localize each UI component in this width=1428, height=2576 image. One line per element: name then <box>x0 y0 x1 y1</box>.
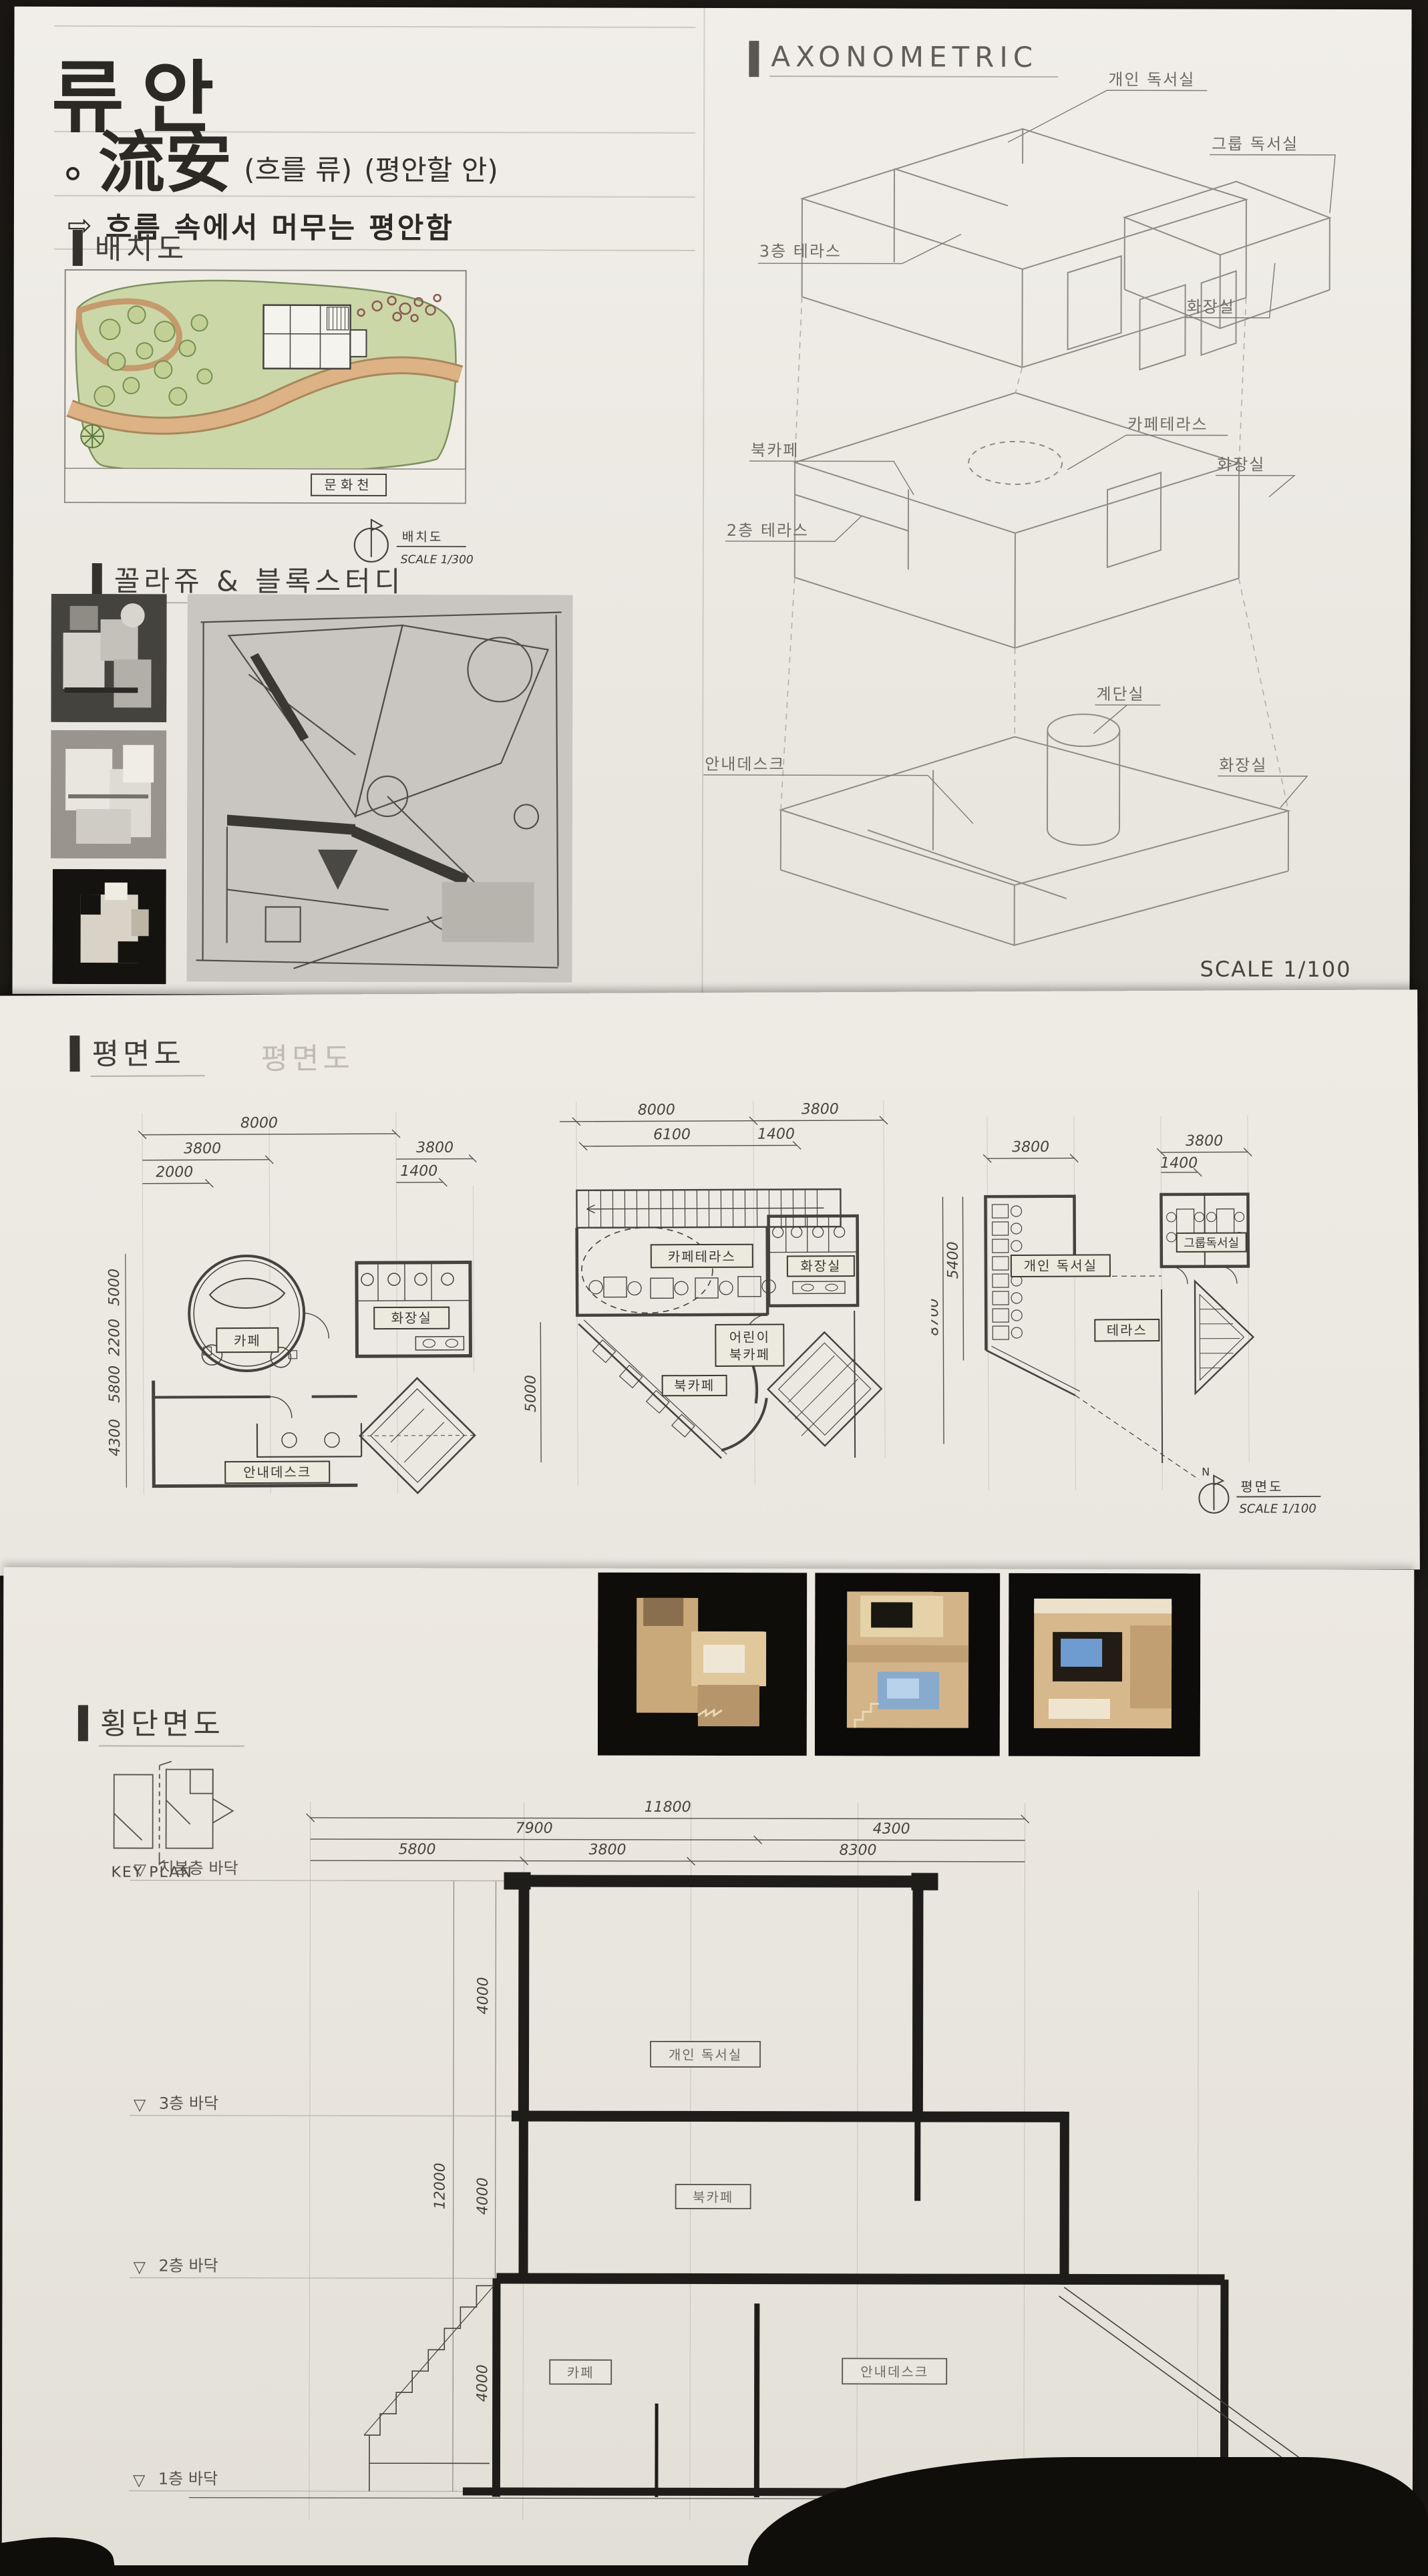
board-middle: 평면도 평면도 8000 3800 3800 2000 1400 5000 22… <box>0 989 1420 1575</box>
level-marker-icon: ▽ <box>133 2470 146 2489</box>
floorplan-header-label: 평면도 <box>90 1029 205 1077</box>
p2-dim-8000: 8000 <box>638 1102 675 1118</box>
p2-room-bookcafe: 북카페 <box>674 1378 715 1394</box>
title-bullet: ∘ <box>59 152 86 194</box>
level-marker-icon: ▽ <box>133 2257 146 2276</box>
block-study-photo-3 <box>52 869 166 984</box>
level-marker-icon: ▽ <box>134 2095 146 2114</box>
p3-room-group-reading: 그룹독서실 <box>1184 1237 1239 1251</box>
floor-plan-1: 8000 3800 3800 2000 1400 5000 2200 5800 … <box>102 1092 478 1504</box>
block-study-photo-2 <box>51 730 166 858</box>
projection-lines <box>781 297 1290 811</box>
axon-label-cafe-terrace: 카페테라스 <box>1127 415 1208 434</box>
north-letter: N <box>1202 1466 1210 1478</box>
header-bar-icon <box>73 230 83 266</box>
p2-room-toilet: 화장실 <box>800 1258 841 1274</box>
p3-room-personal-reading: 개인 독서실 <box>1024 1257 1097 1273</box>
axon-scale-note: SCALE 1/100 <box>1200 957 1351 982</box>
p3-dim-3800b: 3800 <box>1186 1133 1223 1150</box>
model-photo-2 <box>815 1573 1000 1756</box>
sec-dim-3800: 3800 <box>589 1842 627 1859</box>
axon-label-toilet-2f: 화장실 <box>1217 456 1265 474</box>
board-top: 류안 ∘ 流安 (흐를 류) (평안할 안) ⇨ 흐름 속에서 머무는 평안함 … <box>12 7 1411 997</box>
model-photo-3 <box>1009 1573 1200 1757</box>
floorplan-section-header: 평면도 <box>69 1029 205 1077</box>
north-arrow-icon <box>1199 1476 1228 1513</box>
hanja-note-1: (흐를 류) <box>244 148 352 195</box>
north-arrow-icon <box>355 520 388 562</box>
axon-label-group-reading: 그룹 독서실 <box>1212 135 1298 154</box>
p2-dim-1400: 1400 <box>757 1126 795 1142</box>
p1-dim-8000: 8000 <box>240 1115 278 1132</box>
p3-room-terrace: 테라스 <box>1107 1322 1147 1338</box>
p1-dim-left-2: 5800 <box>107 1365 124 1403</box>
header-bar-icon <box>69 1035 79 1072</box>
sec-room-cafe: 카페 <box>567 2365 594 2381</box>
p3-dim-left-1: 8700 <box>930 1298 942 1335</box>
axon-label-terrace-2f: 2층 테라스 <box>727 521 809 540</box>
level-label-2f: 2층 바닥 <box>158 2257 218 2275</box>
p1-dim-left-0: 5000 <box>106 1269 123 1306</box>
p1-dim-2000: 2000 <box>156 1164 193 1180</box>
stream-label: 문화천 <box>324 477 373 493</box>
p2-room-cafe-terrace: 카페테라스 <box>668 1249 736 1265</box>
section-header-label: 횡단면도 <box>99 1700 244 1746</box>
spoke-tree-icon <box>81 425 104 448</box>
axon-label-stair: 계단실 <box>1096 685 1144 703</box>
p2-room-kids-line2: 북카페 <box>729 1347 770 1363</box>
p1-dim-left-3: 4300 <box>107 1419 124 1456</box>
sec-dim-4000a: 4000 <box>475 1977 492 2014</box>
table-edge-shadow <box>0 2565 1428 2576</box>
site-plan-drawing: 문화천 배치도 SCALE 1/300 <box>63 268 478 576</box>
level-label-3f: 3층 바닥 <box>159 2094 218 2113</box>
cross-section-drawing: 11800 7900 4300 5800 3800 8300 4000 4000… <box>89 1794 1339 2541</box>
siteplan-header-label: 배치도 <box>94 224 208 271</box>
sec-room-personal-reading: 개인 독서실 <box>669 2047 742 2063</box>
plan-caption-name: 평면도 <box>1240 1478 1283 1494</box>
guide-line <box>54 25 695 28</box>
p3-dim-3800a: 3800 <box>1012 1139 1049 1156</box>
sec-dim-5800: 5800 <box>399 1841 436 1858</box>
photo-of-presentation-boards: 류안 ∘ 流安 (흐를 류) (평안할 안) ⇨ 흐름 속에서 머무는 평안함 … <box>0 0 1428 2576</box>
axon-label-personal-reading: 개인 독서실 <box>1108 70 1195 89</box>
level-label-roof: 지붕층 바닥 <box>160 1859 238 1878</box>
p1-dim-3800b: 3800 <box>416 1140 454 1156</box>
p1-dim-3800a: 3800 <box>184 1140 221 1157</box>
header-bar-icon <box>78 1705 88 1741</box>
siteplan-section-header: 배치도 <box>73 224 208 271</box>
section-header: 횡단면도 <box>78 1700 244 1746</box>
p3-dim-1400: 1400 <box>1160 1155 1198 1172</box>
p2-dim-left-0: 5000 <box>523 1375 540 1412</box>
board-bottom: 횡단면도 KEY PLAN 11800 <box>2 1567 1415 2572</box>
hanja-note-2: (평안할 안) <box>364 148 498 195</box>
axon-label-terrace-3f: 3층 테라스 <box>759 242 842 261</box>
axon-label-toilet-3f: 화장실 <box>1187 297 1235 316</box>
model-photo-1 <box>598 1573 807 1756</box>
p2-dim-3800: 3800 <box>801 1101 839 1118</box>
p2-room-kids-line1: 어린이 <box>729 1329 770 1345</box>
p1-room-toilet: 화장실 <box>391 1310 432 1326</box>
siteplan-caption-name: 배치도 <box>402 530 443 544</box>
sec-dim-4000b: 4000 <box>475 2177 492 2215</box>
collage-drawing <box>186 594 572 982</box>
sec-room-infodesk: 안내데스크 <box>860 2364 928 2380</box>
sec-dim-8300: 8300 <box>840 1842 877 1859</box>
floorplan-header-ghost: 평면도 <box>260 1034 354 1078</box>
site-building-footprint <box>263 305 366 369</box>
p1-dim-left-1: 2200 <box>106 1319 123 1356</box>
plan-caption-scale: SCALE 1/100 <box>1239 1502 1316 1516</box>
sec-dim-4300: 4300 <box>873 1820 910 1837</box>
sec-dim-7900: 7900 <box>516 1820 553 1836</box>
axon-label-info-desk: 안내데스크 <box>705 755 785 774</box>
floor-plan-3: 3800 3800 1400 5400 8700 <box>930 1088 1316 1501</box>
sec-dim-12000: 12000 <box>432 2162 449 2209</box>
p1-room-cafe: 카페 <box>234 1333 261 1349</box>
p2-dim-6100: 6100 <box>653 1126 691 1143</box>
sec-dim-4000c: 4000 <box>474 2364 491 2402</box>
floor-plan-2: 8000 3800 6100 1400 5000 <box>520 1084 899 1506</box>
p3-dim-left-0: 5400 <box>945 1241 962 1279</box>
level-label-1f: 1층 바닥 <box>158 2470 218 2488</box>
level-marker-icon: ▽ <box>134 1860 146 1879</box>
axon-label-toilet-1f: 화장실 <box>1219 756 1267 775</box>
project-title-hanja: 流安 <box>98 131 232 194</box>
p1-room-infodesk: 안내데스크 <box>243 1464 311 1480</box>
block-study-photo-1 <box>51 594 166 722</box>
sec-room-bookcafe: 북카페 <box>693 2189 733 2205</box>
sec-dim-11800: 11800 <box>645 1799 691 1816</box>
p1-dim-1400: 1400 <box>400 1163 437 1180</box>
axonometric-drawing: 개인 독서실 그룹 독서실 화장실 3층 테라스 카페테라스 화장실 북카페 2… <box>692 61 1395 997</box>
axon-label-book-cafe: 북카페 <box>751 441 799 460</box>
floorplan-caption: N 평면도 SCALE 1/100 <box>1192 1466 1326 1526</box>
